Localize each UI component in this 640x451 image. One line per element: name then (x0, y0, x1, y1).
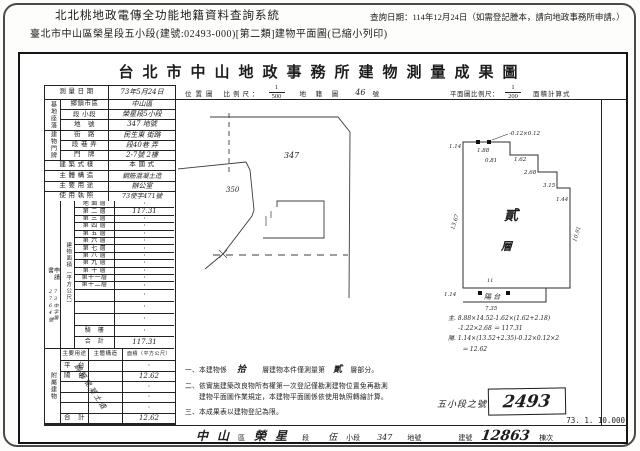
note-1-mid: 層建物本件僅測量第 (262, 366, 325, 377)
use-label: 主 要 用 途 (45, 182, 109, 192)
attached-row-area: · (123, 361, 175, 372)
location-scale-numerator: 1 (275, 85, 278, 92)
floor-label: 第十一層 (75, 275, 115, 282)
floor-value: · (115, 216, 174, 223)
note-1-suffix: 層部分。 (350, 366, 378, 377)
floor-plan-drawing: 1.14 1.88 0.81 -0.12×0.12 1.62 2.68 3.15… (440, 100, 600, 314)
strip-subsection-label: 小段 (346, 433, 360, 443)
dim-1-88: 1.88 (477, 148, 490, 154)
ratio-label: 比例尺： (224, 88, 262, 98)
calc-line-main: 主. 8.88×14.52-1.62×(1.62+2.18) (448, 314, 598, 324)
note-1-prefix: 一、本建物係 (185, 366, 227, 377)
attached-row-structure (89, 372, 123, 383)
floor-value-second: 117.31 (115, 208, 174, 215)
application-label: 申請書 (47, 267, 59, 286)
floor-label-char-2: 貳 (503, 207, 521, 224)
area-calc-label: 面積計算式 (533, 88, 571, 98)
notes-block: 一、本建物係 拾 層建物本件僅測量第 貳 層部分。 二、依實施建築改良物所有權第… (185, 363, 440, 419)
document-subtitle: 臺北市中山區榮星段五小段(建號:02493-000)[第二類]建物平面圖(已縮小… (30, 25, 388, 40)
dim-0-81: 0.81 (485, 158, 497, 164)
dim-11: 11 (487, 278, 493, 284)
floor-label: 第 十 層 (75, 268, 115, 275)
building-number-handwritten: 2493 (502, 391, 552, 412)
site-row-label: 段 小段 (61, 110, 109, 120)
floor-value: · (115, 302, 174, 314)
location-map-drawing: 347 350 (178, 100, 440, 358)
attached-row-structure (89, 361, 123, 372)
strip-parcel-label: 地號 (407, 433, 421, 443)
attached-row-area: · (123, 393, 175, 404)
application-number: 73中字第2764號 (48, 289, 58, 348)
floor-area-group-label: 建物面積（平方公尺） (61, 201, 75, 349)
attached-row-area-balcony: 12.62 (123, 372, 175, 383)
map-sheet-scale-note: 73. 1. 10.000 (545, 416, 625, 425)
dim-1-62: 1.62 (514, 157, 527, 163)
strip-section-label: 段 (302, 433, 309, 443)
plan-scale-numerator: 1 (511, 85, 514, 92)
attached-total-value: 12.62 (123, 414, 175, 425)
site-row-label: 地 號 (61, 120, 109, 130)
structure-label: 主 體 構 造 (45, 171, 109, 181)
document-scan: 北北桃地政電傳全功能地籍資料查詢系統 查詢日期：114年12月24日（如需登記謄… (0, 0, 640, 451)
door-row-value: 段40巷 弄 (109, 141, 175, 151)
location-scale-row: 位置圖 比例尺： 1 500 地 籍 圖 46 號 (185, 86, 379, 99)
dim-10-91: 10.91 (572, 226, 583, 243)
calc-line-balcony: 陽. 1.14×(13.52+2.35)-0.12×0.12×2 (448, 334, 598, 344)
form-title: 台北市中山地政事務所建物測量成果圖 (44, 61, 601, 82)
right-column-divider (601, 99, 602, 425)
floor-value: · (115, 223, 174, 230)
floor-value: · (115, 201, 174, 208)
door-row-value: 民生東 街路 (109, 131, 175, 141)
floor-label: 第 九 層 (75, 260, 115, 267)
door-row-label: 段 巷 弄 (61, 141, 109, 151)
floor-value: · (115, 260, 174, 267)
note-2: 二、依實施建築改良物所有權第一次登記僅勘測建物位置免再勘測 (185, 382, 440, 393)
strip-section-char: 星 (275, 427, 287, 444)
parcel-number-main: 347 (284, 151, 300, 160)
note-3: 三、本成果表以建物登記為限。 (185, 408, 440, 419)
building-number-box: 2493 (488, 387, 566, 415)
attached-row-use (61, 403, 89, 414)
area-calculation: 主. 8.88×14.52-1.62×(1.62+2.18) -1.22×2.6… (448, 314, 598, 355)
cadastral-map-label: 地 籍 圖 (300, 88, 343, 98)
floor-value: · (115, 268, 174, 275)
strip-section-char: 榮 (254, 427, 266, 444)
floor-label: 第 四 層 (75, 223, 115, 230)
cadastral-sheet-number: 46 (355, 88, 365, 97)
total-value: 117.31 (115, 337, 174, 349)
system-title: 北北桃地政電傳全功能地籍資料查詢系統 (55, 7, 280, 23)
dim-2-68: 2.68 (523, 170, 537, 176)
door-group-label: 建物門牌 (45, 131, 61, 162)
parcel-number-left: 350 (226, 186, 240, 194)
site-row-value: 347 地號 (109, 120, 175, 130)
floor-label: 第 三 層 (75, 216, 115, 223)
attached-table: 附屬建物 主要用途 主體構造 面積（平方公尺） 平 台 · 陽 台 12.62 … (44, 349, 176, 425)
query-date: 查詢日期：114年12月24日（如需登記謄本，請向地政事務所申請。） (370, 11, 625, 23)
note-2-cont: 建物平面圖作業規定，本建物平面圖係依使用執照轉繪計算。 (185, 393, 440, 404)
style-label: 建 築 式 樣 (45, 161, 109, 171)
attached-row-use (61, 393, 89, 404)
door-row-label: 門 牌 (61, 151, 109, 161)
dim-13-67: 13.67 (450, 213, 461, 230)
use-value: 辦公室 (109, 182, 175, 192)
strip-district-char: 山 (217, 427, 229, 444)
dim-3-15: 3.15 (543, 183, 556, 189)
floor-label: 地 面 層 (75, 201, 115, 208)
dim-1-14-balcony: 1.14 (444, 292, 457, 298)
dim-1-14-top: 1.14 (449, 144, 462, 150)
application-number-cell: 申請書 73中字第2764號 (45, 201, 61, 349)
attached-structure-header: 主體構造 (89, 349, 123, 361)
note-1: 一、本建物係 拾 層建物本件僅測量第 貳 層部分。 (185, 363, 440, 377)
floor-value: · (115, 253, 174, 260)
strip-district-char: 中 (196, 427, 208, 444)
calc-line-main-2: -1.22×2.68 ＝ 117.31 (448, 324, 598, 334)
attached-row-area: · (123, 382, 175, 393)
floor-label: 第十二層 (75, 282, 115, 289)
door-row-value: 2-7號 2樓 (109, 151, 175, 161)
floor-value: · (115, 245, 174, 252)
arcade-label: 騎 樓 (75, 326, 115, 337)
floor-label: 第 七 層 (75, 245, 115, 252)
structure-value: 鋼筋混凝土造 (109, 171, 175, 181)
bottom-strip-divider (44, 425, 628, 426)
attached-group-label: 附屬建物 (45, 349, 61, 424)
floor-value: · (115, 238, 174, 245)
dim-column-size: -0.12×0.12 (509, 131, 540, 137)
plan-scale-row: 平面圖比例尺： 1 200 面積計算式 (450, 86, 571, 99)
floor-area-table: 申請書 73中字第2764號 建物面積（平方公尺） 地 面 層 · 第 二 層 … (44, 201, 176, 350)
floor-value: · (115, 231, 174, 238)
balcony-label: 陽 台 (484, 293, 501, 301)
note-1-floors-hand: 拾 (237, 363, 246, 377)
floor-label-char-floor: 層 (500, 240, 514, 253)
site-row-value: 榮星段5小段 (109, 110, 175, 120)
calc-line-balcony-2: ＝ 12.62 (448, 345, 598, 355)
floor-label: 第 五 層 (75, 231, 115, 238)
strip-parcel-hand: 347 (377, 433, 392, 442)
plan-scale-label: 平面圖比例尺： (450, 88, 499, 98)
floor-label: 第 六 層 (75, 238, 115, 245)
site-row-label: 鄉鎮市區 (61, 100, 109, 110)
info-table: 測 量 日 期 73年5月24日 基地座落 鄉鎮市區 中山區 段 小段 榮星段5… (44, 85, 176, 203)
floor-value: · (115, 275, 174, 282)
attached-use-header: 主要用途 (61, 349, 89, 361)
bottom-strip: 中 山 區 榮 星 段 伍 小段 347 地號 建號 12863 棟次 (196, 427, 596, 442)
cadastral-unit: 號 (372, 88, 379, 98)
site-group-label: 基地座落 (45, 100, 61, 131)
attached-row-area: · (123, 403, 175, 414)
floor-value: · (115, 290, 174, 302)
door-row-label: 街 路 (61, 131, 109, 141)
dim-1-44: 1.44 (556, 197, 569, 203)
strip-building-number-hand: 12863 (480, 428, 531, 444)
floor-label (75, 302, 115, 314)
style-value: 本 國 式 (109, 161, 175, 171)
strip-building-suffix: 棟次 (539, 433, 553, 443)
floor-label (75, 314, 115, 326)
strip-subsection-hand: 伍 (328, 430, 337, 443)
floor-label (75, 290, 115, 302)
attached-total-label: 合 計 (61, 414, 89, 425)
floor-value: · (115, 282, 174, 289)
floor-label: 第 八 層 (75, 253, 115, 260)
arcade-value: · (115, 326, 174, 337)
attached-row-structure (89, 414, 123, 425)
site-row-value: 中山區 (109, 100, 175, 110)
subsection-stamp-label: 五小段之號 (437, 397, 487, 410)
note-1-target-floor-hand: 貳 (333, 363, 342, 377)
survey-date-value: 73年5月24日 (109, 86, 175, 100)
survey-date-label: 測 量 日 期 (45, 86, 109, 100)
floor-value: · (115, 314, 174, 326)
strip-building-label: 建號 (458, 433, 472, 443)
strip-district-label: 區 (238, 433, 245, 443)
dim-7-35: 7.35 (485, 306, 498, 312)
attached-area-header: 面積（平方公尺） (123, 349, 175, 361)
floor-label: 第 二 層 (75, 208, 115, 215)
location-map-label: 位置圖 (185, 88, 217, 98)
total-label: 合 計 (75, 337, 115, 349)
